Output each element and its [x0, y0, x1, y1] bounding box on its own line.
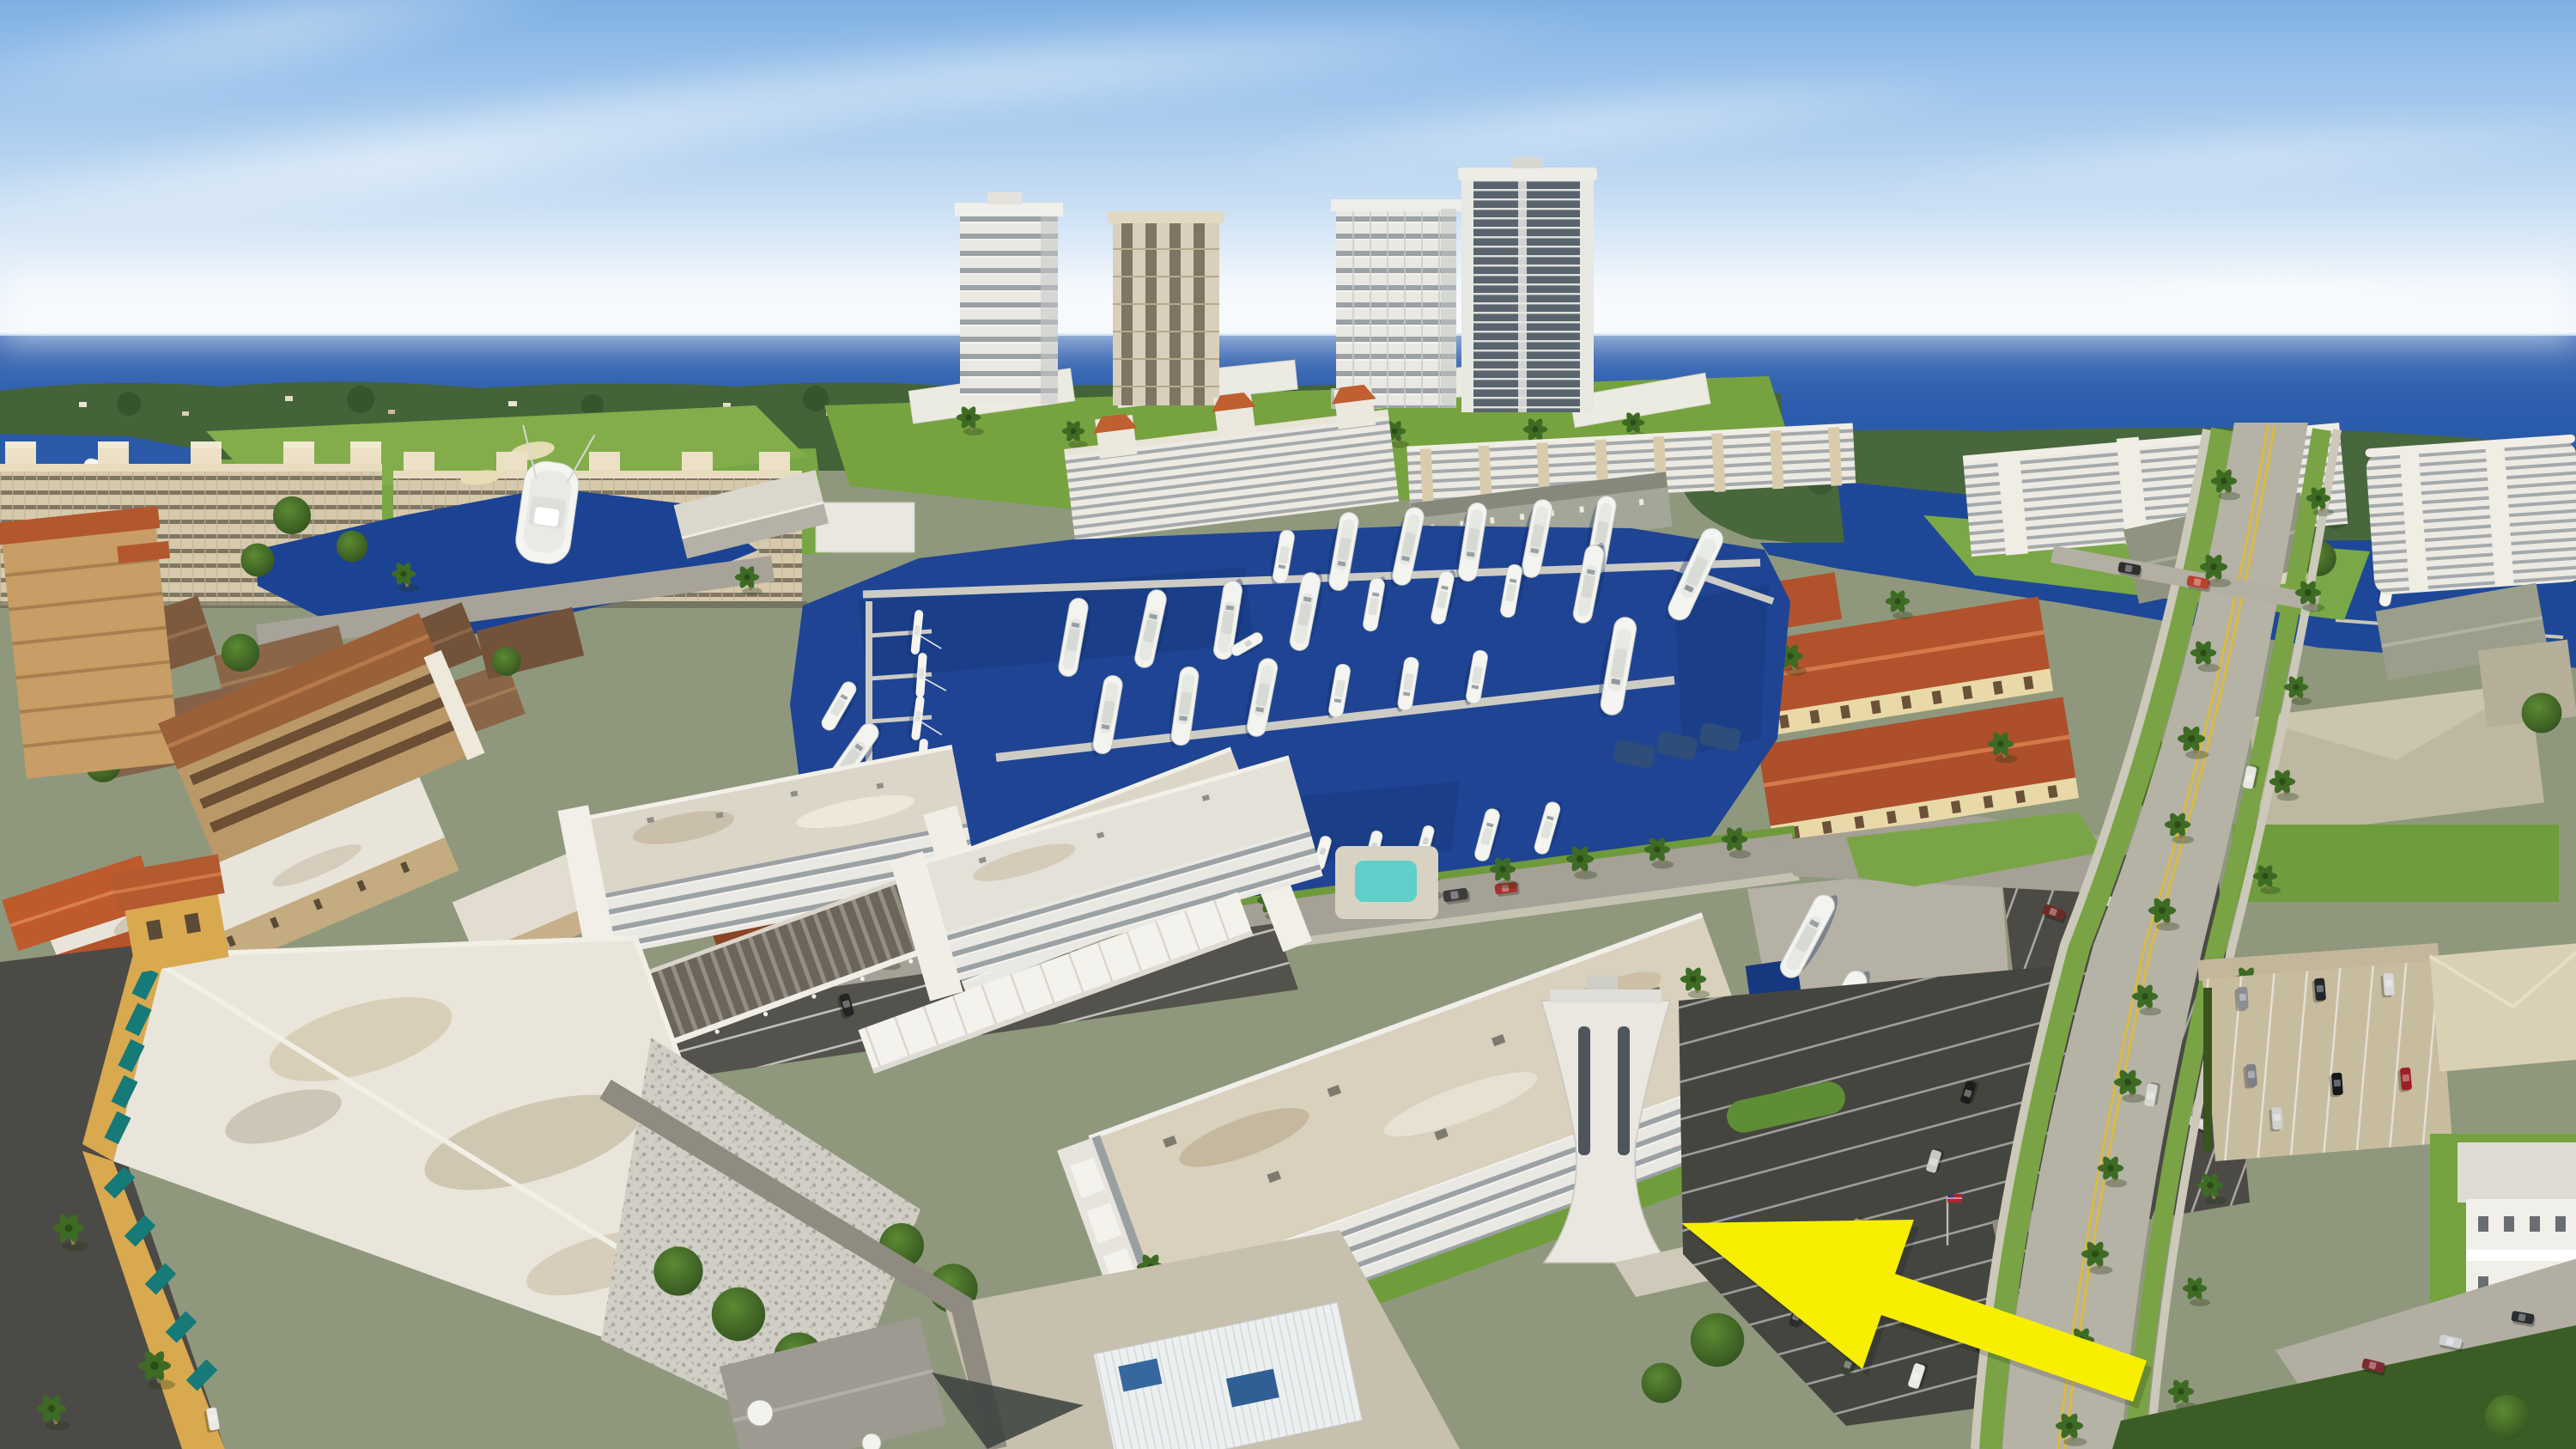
- car: [2312, 978, 2326, 1003]
- east-parking: [2202, 960, 2452, 1161]
- tower-window-slit: [1618, 1026, 1630, 1155]
- car: [2397, 1068, 2412, 1093]
- swimming-pool: [1355, 861, 1417, 902]
- orange-tall-building: [0, 505, 191, 779]
- tree: [2485, 1395, 2530, 1440]
- tree: [273, 496, 311, 534]
- tree: [241, 544, 275, 577]
- car: [2243, 1064, 2257, 1089]
- tower-3: [1331, 199, 1461, 408]
- us-flag: [1947, 1194, 1962, 1202]
- tree: [2522, 693, 2562, 734]
- car: [2269, 1107, 2283, 1132]
- tower-4: [1458, 157, 1597, 412]
- flared-tower-cap: [1550, 989, 1662, 1003]
- tree: [1691, 1313, 1744, 1367]
- tower-window-slit: [1578, 1026, 1590, 1155]
- right-slab-2: [2365, 434, 2576, 595]
- scene-overlay: [0, 0, 2576, 1449]
- tower-2: [1108, 211, 1224, 405]
- tree: [492, 647, 521, 676]
- house-roof: [2458, 1142, 2576, 1202]
- satellite-dish: [862, 1434, 881, 1449]
- car: [2234, 987, 2249, 1012]
- hedge: [2203, 988, 2212, 1151]
- tree: [222, 634, 259, 672]
- cream-roof-house: [2430, 942, 2576, 1072]
- tree: [1642, 1363, 1682, 1403]
- small-white-building: [816, 502, 914, 552]
- tower-1: [955, 192, 1063, 404]
- tree: [337, 531, 368, 562]
- east-lawn: [2233, 825, 2559, 902]
- satellite-dish: [747, 1400, 773, 1426]
- car: [2329, 1073, 2343, 1098]
- balcony-band: [2466, 1250, 2576, 1261]
- aerial-photo: [0, 0, 2576, 1449]
- car: [2380, 973, 2395, 998]
